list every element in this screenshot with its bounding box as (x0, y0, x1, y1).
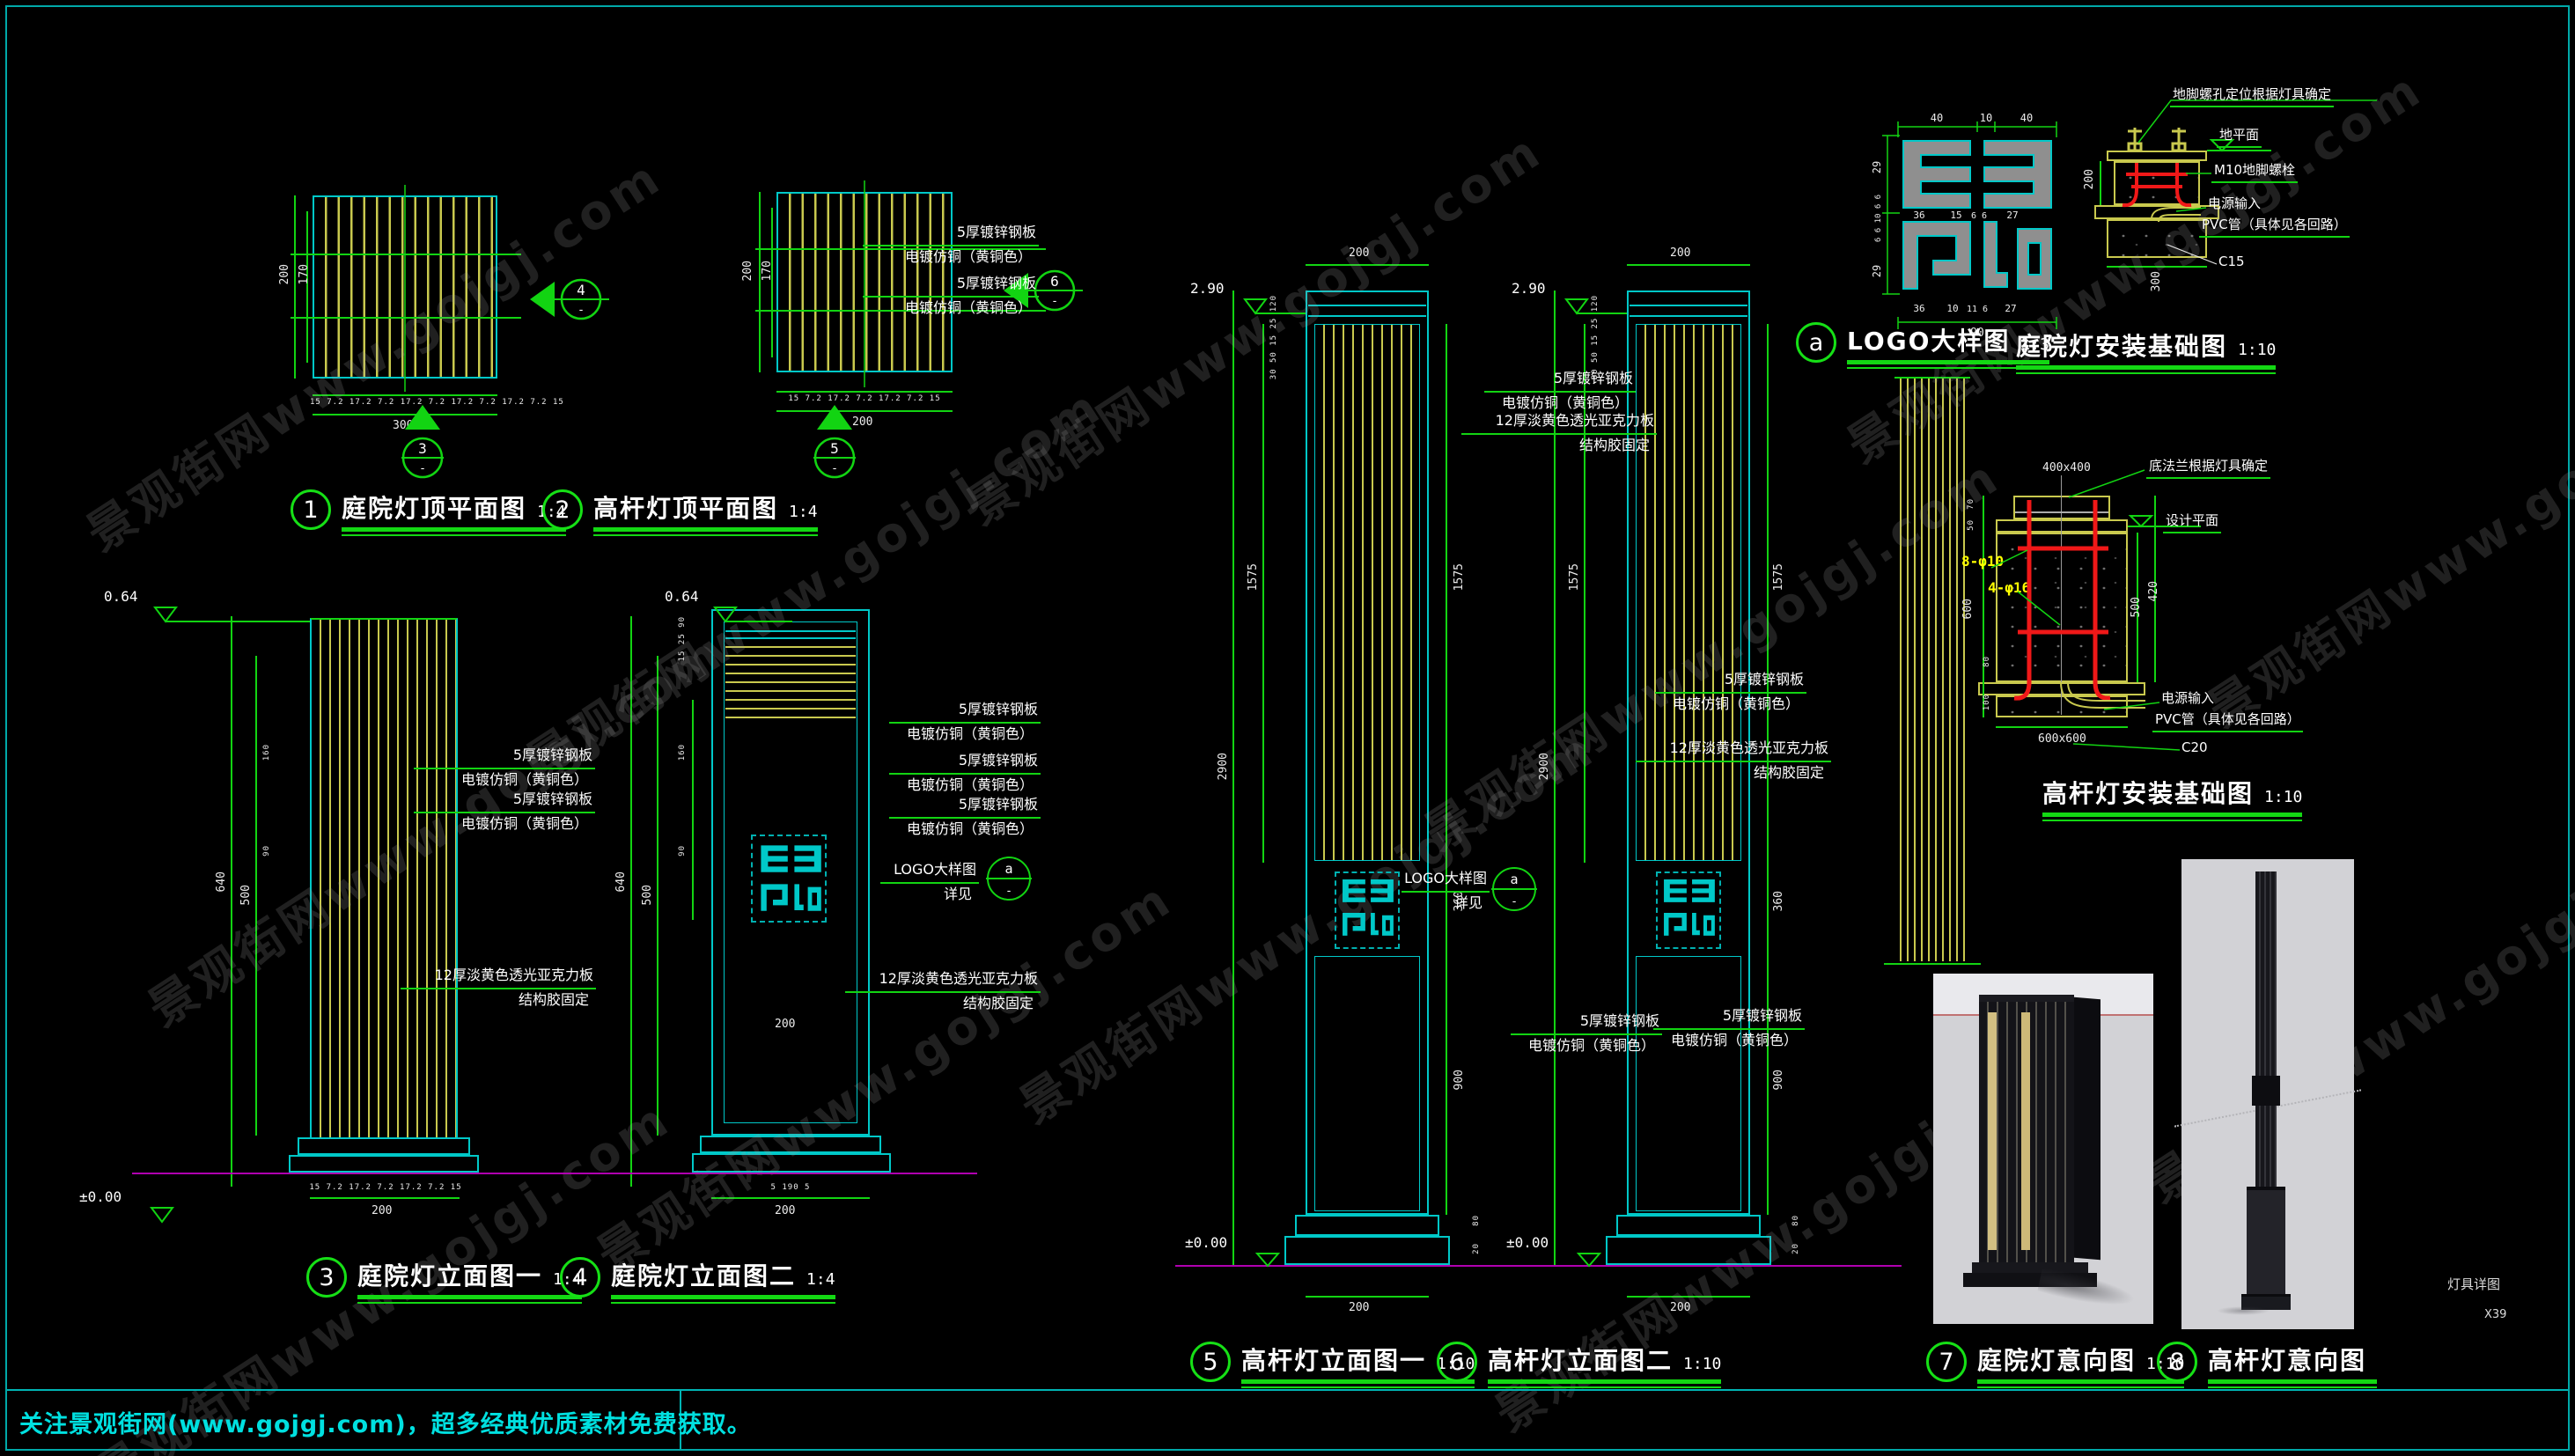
material-label: 5厚镀锌钢板电镀仿铜（黄铜色） (414, 789, 595, 835)
level-mark: ±0.00 (1506, 1234, 1549, 1251)
base1-label-ground: 地平面 (2217, 125, 2262, 148)
material-label: 5厚镀锌钢板电镀仿铜（黄铜色） (863, 222, 1039, 268)
material-label: 5厚镀锌钢板电镀仿铜（黄铜色） (863, 273, 1039, 320)
level-mark: 2.90 (1512, 280, 1546, 297)
material-label: 5厚镀锌钢板电镀仿铜（黄铜色） (1511, 1011, 1662, 1057)
level-mark: 0.64 (104, 588, 138, 605)
sheet-name: 灯具详图 (2447, 1275, 2500, 1293)
base2-label-concrete: C20 (2181, 738, 2208, 758)
base1-label-anchor: 地脚螺孔定位根据灯具确定 (2170, 85, 2334, 107)
material-label: 5厚镀锌钢板电镀仿铜（黄铜色） (889, 699, 1041, 746)
base1-label-concrete: C15 (2218, 252, 2245, 272)
material-label: 5厚镀锌钢板电镀仿铜（黄铜色） (889, 794, 1041, 841)
material-label: 12厚淡黄色透光亚克力板结构胶固定 (401, 965, 596, 1011)
base1-label-bolt: M10地脚螺栓 (2211, 160, 2298, 183)
level-mark: ±0.00 (1185, 1234, 1227, 1251)
material-label: 5厚镀锌钢板电镀仿铜（黄铜色） (1484, 368, 1636, 415)
material-label: 5厚镀锌钢板电镀仿铜（黄铜色） (1655, 669, 1806, 716)
logo-title: a LOGO大样图1:3 (1796, 322, 2049, 369)
view7-title: 7 庭院灯意向图1:10 (1926, 1342, 2184, 1388)
view1-title-text: 庭院灯顶平面图 (342, 489, 526, 525)
view2-title: 2 高杆灯顶平面图1:4 (542, 489, 818, 536)
level-mark: ±0.00 (79, 1188, 121, 1205)
base2-label-design: 设计平面 (2163, 511, 2221, 533)
level-mark: 2.90 (1190, 280, 1225, 297)
material-label: 5厚镀锌钢板电镀仿铜（黄铜色） (1653, 1005, 1805, 1052)
base2-label-flange: 底法兰根据灯具确定 (2146, 456, 2270, 479)
base2-title: 高杆灯安装基础图1:10 (2042, 775, 2302, 821)
view4-title: 4 庭院灯立面图二1:4 (560, 1257, 835, 1304)
material-label: 12厚淡黄色透光亚克力板结构胶固定 (845, 968, 1041, 1015)
view1-number: 1 (291, 489, 331, 530)
sheet-number: X39 (2484, 1308, 2506, 1321)
logo-reference-label: LOGO大样图详见 (1402, 868, 1490, 915)
base2-label-pvc: PVC管（具体见各回路） (2152, 710, 2303, 732)
base1-title: 庭院灯安装基础图1:10 (2016, 327, 2276, 374)
view6-title: 6 高杆灯立面图二1:10 (1437, 1342, 1721, 1388)
view1-title: 1 庭院灯顶平面图1:4 (291, 489, 566, 536)
material-label: 5厚镀锌钢板电镀仿铜（黄铜色） (889, 750, 1041, 797)
view5-title: 5 高杆灯立面图一1:10 (1190, 1342, 1475, 1388)
view3-title: 3 庭院灯立面图一1:4 (306, 1257, 582, 1304)
footer-promo-text: 关注景观街网(www.gojgj.com)，超多经典优质素材免费获取。 (19, 1405, 752, 1439)
level-mark: 0.64 (665, 588, 699, 605)
base1-label-pvc: PVC管（具体见各回路） (2199, 215, 2350, 238)
material-label: 12厚淡黄色透光亚克力板结构胶固定 (1461, 410, 1657, 457)
material-label: 5厚镀锌钢板电镀仿铜（黄铜色） (414, 745, 595, 791)
logo-reference-label: LOGO大样图详见 (880, 859, 979, 906)
material-label: 12厚淡黄色透光亚克力板结构胶固定 (1636, 738, 1831, 784)
cad-sheet: 景观街网www.gojgj.com 景观街网www.gojgj.com 景观街网… (0, 0, 2575, 1456)
base1-label-power: 电源输入 (2208, 194, 2261, 214)
base2-label-power: 电源输入 (2161, 688, 2214, 709)
view8-title: 8 高杆灯意向图 (2157, 1342, 2377, 1388)
